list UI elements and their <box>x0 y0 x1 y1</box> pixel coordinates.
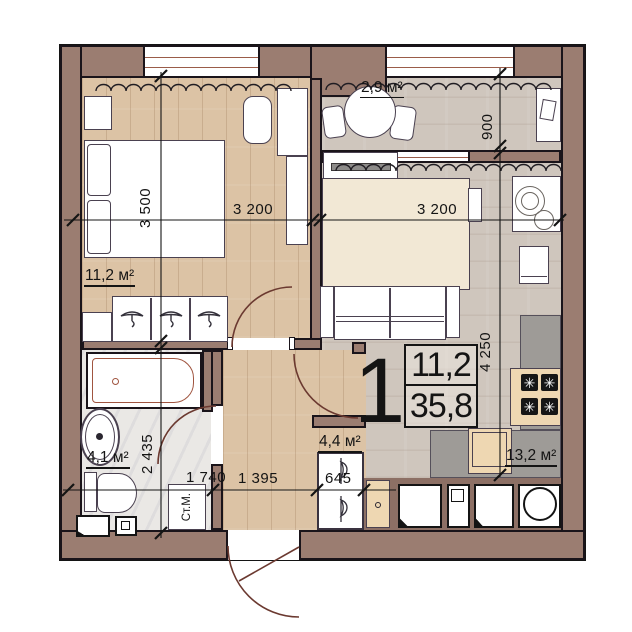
area-table-total: 35,8 <box>406 386 476 426</box>
area-label-bathroom: 4,1 м² <box>86 450 130 469</box>
dim-label-bedroom-depth: 3 500 <box>138 160 153 228</box>
dim-label-balcony-depth: 900 <box>480 96 495 140</box>
apartment-number: 1 <box>354 352 405 430</box>
area-table: 11,2 35,8 <box>404 344 478 428</box>
area-label-balcony: 2,9 м² <box>360 80 404 98</box>
building-outline <box>59 44 586 561</box>
floor-plan-canvas: ✳ ✳ ✳ ✳ Ст.М. <box>0 0 632 632</box>
dim-label-living-width: 3 200 <box>417 202 457 217</box>
area-label-kitchen-living: 13,2 м² <box>505 448 557 467</box>
area-table-living: 11,2 <box>406 346 476 386</box>
dim-label-closet-width: 645 <box>325 471 352 486</box>
area-label-bedroom: 11,2 м² <box>84 268 135 287</box>
dim-label-bathroom-width: 1 740 <box>186 470 226 485</box>
dim-label-kitchen-depth: 4 250 <box>478 310 493 372</box>
dim-label-bedroom-width: 3 200 <box>233 202 273 217</box>
dim-label-bathroom-depth: 2 435 <box>140 412 155 474</box>
dim-label-hallway-width: 1 395 <box>238 471 278 486</box>
